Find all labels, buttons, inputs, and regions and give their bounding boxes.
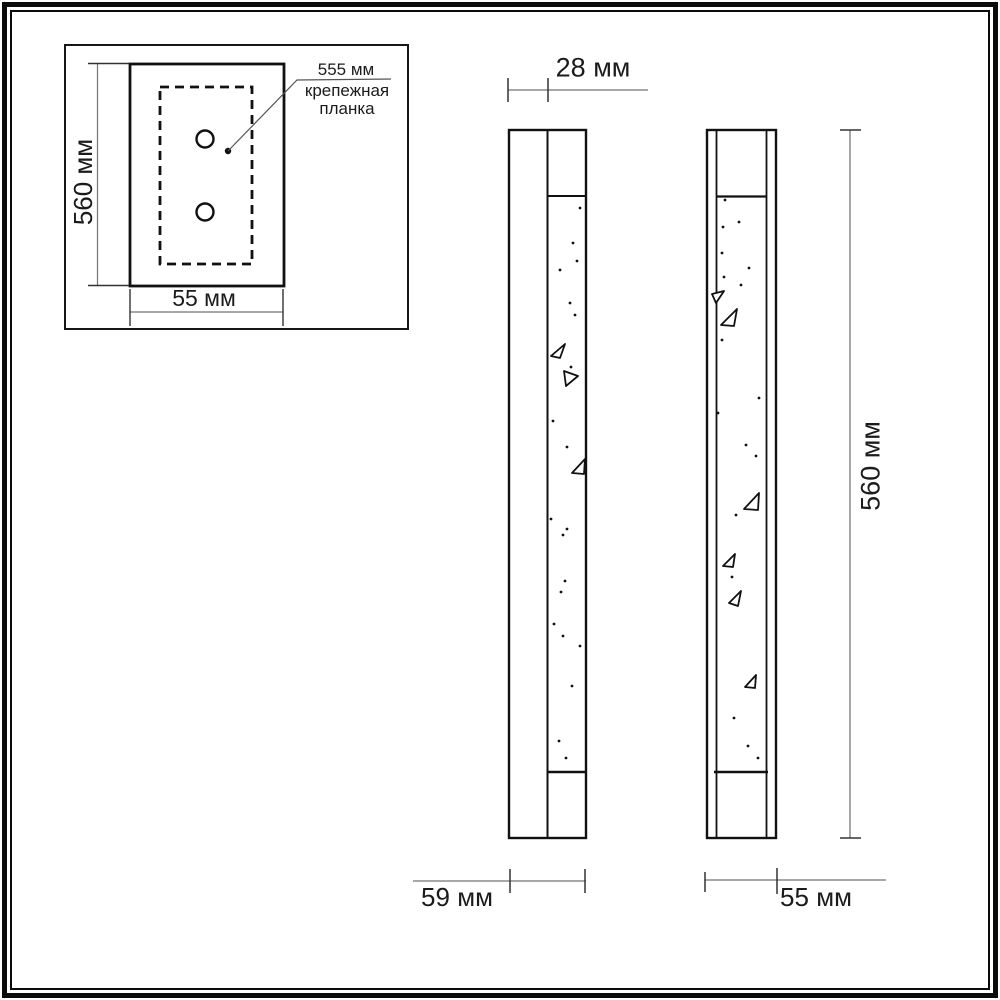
side-depth-dimension-label: 28 мм xyxy=(556,54,631,83)
front-width-dimension-label: 55 мм xyxy=(780,884,852,912)
side-view-diffuser-texture xyxy=(550,207,585,760)
inset-height-dimension-label: 560 мм xyxy=(70,139,98,225)
hole-spacing-dimension-label: 555 мм xyxy=(318,61,374,79)
mounting-plate-dashed-outline xyxy=(160,87,252,264)
mounting-plate-label: крепежная планка xyxy=(305,82,389,118)
technical-drawing-canvas: 560 мм 55 мм 555 мм крепежная планка 28 … xyxy=(0,0,1000,1000)
lamp-back-outline xyxy=(130,64,284,286)
front-height-dimension-label: 560 мм xyxy=(857,421,886,511)
mounting-hole-top xyxy=(197,131,214,148)
side-width-dimension-label: 59 мм xyxy=(421,884,493,912)
side-view xyxy=(413,78,648,893)
inset-width-dimension-label: 55 мм xyxy=(172,286,236,310)
front-view-diffuser-texture xyxy=(712,199,760,760)
dimension-drawing-svg xyxy=(0,0,1000,1000)
mounting-hole-bottom xyxy=(197,204,214,221)
front-view xyxy=(705,130,886,894)
